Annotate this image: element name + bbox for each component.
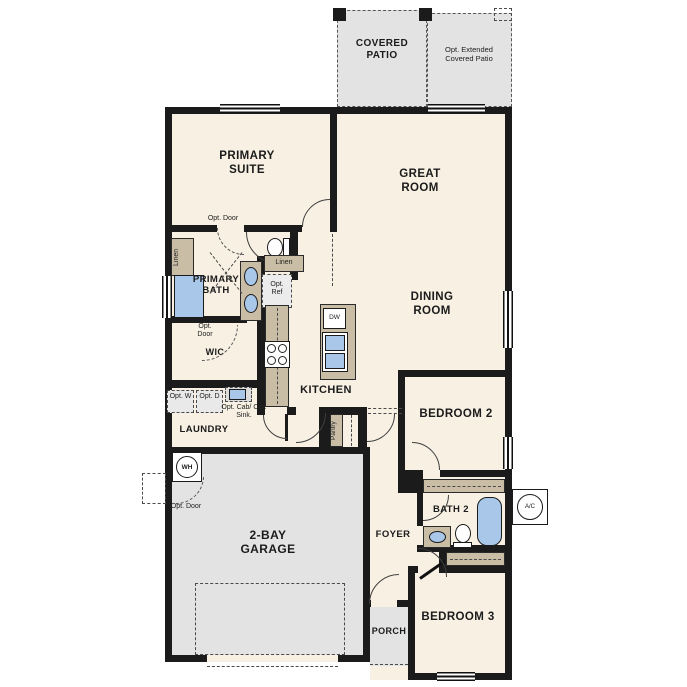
opt-ref-label: Opt. Ref <box>264 281 290 297</box>
kitchen-label: KITCHEN <box>296 384 356 397</box>
wall <box>398 370 405 477</box>
closet-rod-line <box>450 559 501 560</box>
water-heater-label: WH <box>182 464 193 471</box>
wall <box>165 225 217 232</box>
wall <box>440 470 512 477</box>
sink <box>244 267 258 286</box>
patio-post <box>333 8 346 21</box>
porch-label: PORCH <box>370 626 408 637</box>
closet-rod-line <box>427 486 501 487</box>
ac-label: A/C <box>525 504 535 510</box>
pantry-label: Pantry <box>330 415 343 446</box>
wall <box>397 600 415 607</box>
opt-door-outline <box>142 473 166 504</box>
wall <box>417 491 423 526</box>
toilet-tank <box>453 542 472 548</box>
sink-basin <box>325 353 345 369</box>
wall <box>165 450 172 662</box>
wall <box>408 566 415 680</box>
linen-label: Linen <box>173 240 192 274</box>
wall <box>505 107 512 680</box>
bathtub <box>477 497 502 546</box>
burner <box>278 356 287 365</box>
extended-patio-corner <box>494 8 512 21</box>
opt-door-primary-label: Opt. Door <box>202 215 244 223</box>
garage-apron <box>207 666 338 667</box>
ac-unit: A/C <box>517 494 543 520</box>
foyer-label: FOYER <box>372 529 414 540</box>
dining-room-label: DINING ROOM <box>398 291 466 318</box>
wall <box>398 470 423 493</box>
bedroom-2-label: BEDROOM 2 <box>412 408 500 422</box>
extended-patio-label: Opt. Extended Covered Patio <box>430 46 508 63</box>
laundry-label: LAUNDRY <box>172 424 236 435</box>
sink <box>244 294 258 313</box>
window <box>503 291 513 348</box>
burner <box>267 356 276 365</box>
opt-door-garage-label: Opt. Door <box>170 503 202 511</box>
wall <box>446 566 512 573</box>
garage-label: 2-BAY GARAGE <box>232 528 304 556</box>
great-room-label: GREAT ROOM <box>382 168 458 195</box>
window <box>503 437 513 469</box>
wall <box>165 655 207 662</box>
sink-basin <box>325 335 345 351</box>
opt-cab-sink-label: Opt. Cab/ Opt. Sink. <box>220 404 268 420</box>
coat-closet-line <box>351 415 352 446</box>
covered-patio-label: COVERED PATIO <box>345 38 419 62</box>
wall <box>363 450 370 662</box>
wall <box>330 107 337 232</box>
window <box>437 672 475 681</box>
burner <box>278 344 287 353</box>
floor-plan: COVERED PATIO Opt. Extended Covered Pati… <box>0 0 687 687</box>
opening-marker <box>368 413 402 414</box>
burner <box>267 344 276 353</box>
toilet-bowl <box>455 524 471 543</box>
opt-dryer-label: Opt. D <box>196 393 223 401</box>
wall <box>474 673 512 680</box>
linen-label: Linen <box>264 259 304 267</box>
wall <box>287 407 296 415</box>
garage-door-zone <box>195 583 345 655</box>
opt-washer-label: Opt. W <box>167 393 194 401</box>
bedroom-3-label: BEDROOM 3 <box>415 611 501 625</box>
water-heater: WH <box>176 456 198 478</box>
opening-marker <box>332 234 333 286</box>
primary-suite-label: PRIMARY SUITE <box>202 150 292 177</box>
wall <box>358 407 367 453</box>
sink <box>429 531 446 543</box>
dishwasher-label: DW <box>323 314 346 321</box>
window <box>162 276 172 318</box>
patio-post <box>419 8 432 21</box>
patio-slider-window <box>428 104 485 113</box>
porch-edge <box>370 664 408 665</box>
wall <box>398 370 512 377</box>
opening-marker <box>368 408 402 409</box>
opt-sink <box>229 389 246 400</box>
window <box>220 104 280 113</box>
